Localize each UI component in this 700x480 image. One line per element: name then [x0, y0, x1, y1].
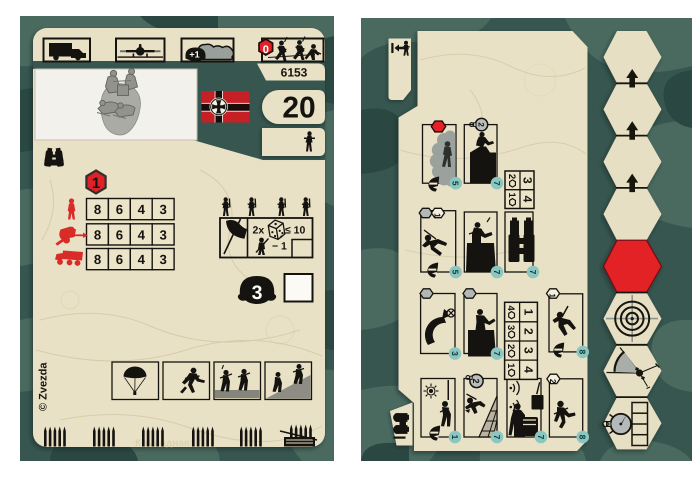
svg-text:2: 2: [506, 174, 517, 179]
svg-text:4: 4: [138, 202, 146, 217]
svg-text:2: 2: [505, 344, 516, 349]
svg-text:1: 1: [433, 213, 443, 218]
svg-text:2: 2: [476, 122, 485, 127]
svg-text:20: 20: [282, 92, 315, 125]
svg-text:5: 5: [451, 181, 461, 186]
svg-text:+1: +1: [189, 50, 199, 60]
svg-text:4: 4: [521, 366, 535, 373]
svg-text:8: 8: [94, 202, 101, 217]
svg-text:6153: 6153: [281, 66, 308, 80]
svg-text:6: 6: [116, 202, 123, 217]
svg-text:3: 3: [521, 347, 535, 354]
svg-text:7: 7: [492, 351, 502, 356]
svg-text:3: 3: [505, 325, 516, 330]
svg-text:3: 3: [160, 227, 167, 242]
svg-text:7: 7: [536, 435, 546, 440]
svg-text:7: 7: [492, 270, 502, 275]
svg-text:3: 3: [252, 282, 263, 304]
svg-text:8: 8: [94, 252, 101, 267]
svg-text:6: 6: [116, 227, 123, 242]
svg-text:4: 4: [138, 252, 146, 267]
svg-text:≤ 10: ≤ 10: [285, 225, 306, 237]
svg-text:2: 2: [548, 379, 558, 384]
svg-text:8: 8: [94, 227, 101, 242]
svg-text:7: 7: [492, 181, 502, 186]
svg-text:3: 3: [450, 351, 460, 356]
svg-text:4: 4: [520, 196, 534, 203]
svg-text:8: 8: [578, 435, 588, 440]
svg-text:1: 1: [521, 309, 535, 316]
svg-text:1: 1: [548, 293, 558, 298]
svg-text:1: 1: [506, 193, 517, 199]
svg-text:3: 3: [160, 202, 167, 217]
svg-text:− 1: − 1: [272, 241, 287, 253]
svg-text:0: 0: [263, 44, 269, 56]
svg-text:1: 1: [505, 363, 516, 369]
svg-text:8: 8: [578, 350, 588, 355]
svg-text:5: 5: [451, 270, 461, 275]
svg-text:7: 7: [492, 435, 502, 440]
svg-text:4: 4: [505, 306, 516, 312]
svg-text:1: 1: [450, 435, 460, 440]
svg-text:1: 1: [92, 175, 100, 192]
svg-text:© Zvezda: © Zvezda: [38, 362, 50, 411]
svg-text:4: 4: [138, 227, 146, 242]
svg-text:7: 7: [528, 270, 538, 275]
svg-text:2: 2: [521, 328, 535, 335]
svg-text:3: 3: [160, 252, 167, 267]
svg-text:3: 3: [520, 177, 534, 184]
svg-text:6: 6: [116, 252, 123, 267]
svg-text:2x: 2x: [253, 225, 265, 237]
